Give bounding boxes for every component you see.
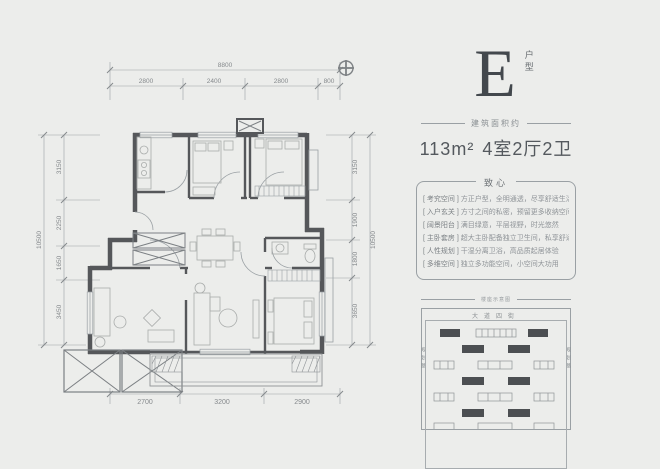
dim-label: 1800 [352, 251, 359, 266]
siteplan-caption: 楼座示意图 [475, 296, 517, 303]
site-plan: 大道四街 规划路 规划路 [421, 308, 571, 430]
divider-line [517, 299, 571, 300]
area-headline: 113m²4室2厅2卫 [402, 135, 590, 161]
dim-label: 3150 [352, 159, 359, 174]
unit-type-heading: E 户型 [420, 36, 590, 114]
street-label-top: 大道四街 [422, 311, 570, 320]
feature-line: [ 多维空间 ]独立多功能空间，小空间大功用 [423, 258, 569, 271]
info-panel: E 户型 建筑面积约 113m²4室2厅2卫 致心 [ 考究空间 ]方正户型，全… [402, 36, 590, 430]
dim-left-total: 10500 [36, 231, 43, 249]
dim-label: 2900 [294, 399, 310, 404]
area-value: 113m² [420, 139, 475, 159]
layout-value: 4室2厅2卫 [482, 139, 572, 159]
feature-line: [ 入户玄关 ]方寸之间的私密，预留更多收纳空间 [423, 206, 569, 219]
dim-label: 1900 [352, 212, 359, 227]
feature-card-title: 致心 [476, 176, 516, 189]
dim-right-total: 10500 [370, 231, 377, 249]
dim-label: 2400 [207, 78, 222, 85]
feature-line: [ 阔景阳台 ]满目绿意，平层视野，时光悠然 [423, 219, 569, 232]
dim-label: 3200 [214, 399, 230, 404]
balcony [150, 354, 322, 386]
dim-label: 2800 [274, 78, 289, 85]
siteplan-caption-row: 楼座示意图 [421, 296, 571, 303]
dim-label: 3650 [352, 303, 359, 318]
wardrobe-strips [255, 186, 320, 281]
feature-card: 致心 [ 考究空间 ]方正户型，全明通透，尽享舒适生活 [ 入户玄关 ]方寸之间… [416, 181, 576, 280]
divider-line [421, 123, 465, 124]
dim-label: 2250 [56, 215, 63, 230]
dim-label: 3450 [56, 304, 63, 319]
dim-label: 2800 [139, 78, 154, 85]
dim-label: 2700 [137, 399, 153, 404]
dim-label: 3150 [56, 159, 63, 174]
unit-type-label: 户型 [523, 50, 536, 74]
compass-icon [338, 60, 354, 76]
feature-line: [ 主卧套房 ]超大主卧配备独立卫生间，私享舒适 [423, 232, 569, 245]
divider-line [421, 299, 475, 300]
dim-label: 1650 [56, 255, 63, 270]
unit-type-letter: E [474, 36, 516, 110]
feature-line: [ 考究空间 ]方正户型，全明通透，尽享舒适生活 [423, 193, 569, 206]
area-caption: 建筑面积约 [465, 118, 527, 129]
area-caption-row: 建筑面积约 [421, 118, 571, 129]
dim-top-total: 8800 [218, 62, 233, 69]
feature-line: [ 人性规划 ]干湿分离卫浴，高品质起居体验 [423, 245, 569, 258]
site-plan-buildings [428, 321, 564, 429]
walls [88, 133, 324, 354]
divider-line [527, 123, 571, 124]
dim-label: 800 [324, 78, 335, 85]
